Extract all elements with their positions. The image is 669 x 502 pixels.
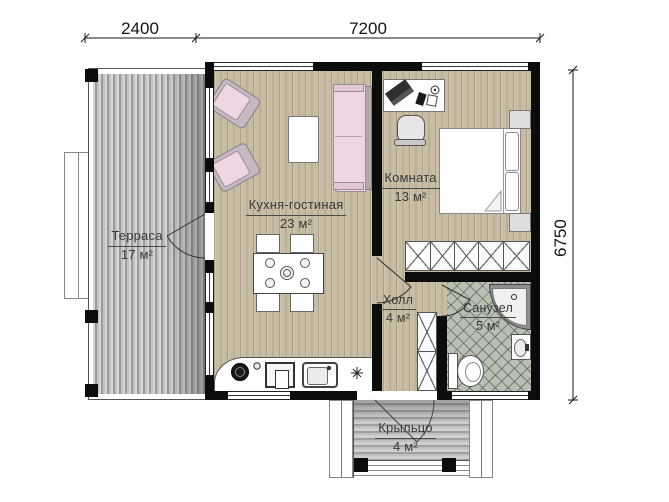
porch-label: Крыльцо 4 м²: [353, 420, 458, 456]
dining-chair: [256, 293, 280, 312]
window: [205, 273, 214, 302]
window: [422, 62, 528, 71]
toilet-seat: [465, 362, 481, 382]
dimension-right: 6750: [551, 208, 571, 268]
dining-chair: [256, 234, 280, 253]
bedroom-name: Комната: [381, 170, 439, 189]
coffee-table: [288, 116, 319, 163]
kitchen-counter: [214, 357, 375, 393]
bedroom-label: Комната 13 м²: [358, 170, 463, 206]
wardrobe: [405, 241, 531, 271]
office-chair-back: [394, 139, 426, 146]
office-chair: [394, 113, 426, 147]
window: [205, 88, 214, 158]
faucet-icon: [525, 344, 529, 351]
sink-basin: [307, 367, 328, 385]
porch-post: [354, 458, 368, 472]
window: [452, 391, 528, 400]
terrace-post: [85, 384, 98, 397]
terrace-door-opening: [205, 213, 214, 260]
bathroom-name: Санузел: [460, 300, 516, 318]
oven-icon: [265, 362, 295, 388]
wardrobe-door: [478, 241, 504, 271]
toilet-icon: [448, 352, 485, 390]
window: [228, 391, 290, 400]
window: [205, 313, 214, 375]
porch-post: [442, 458, 456, 472]
oven-door: [275, 370, 289, 389]
floor-plan: 2400 7200 6750 Терраса 17 м² Кухня-гости…: [0, 0, 669, 502]
wardrobe-door: [454, 241, 479, 271]
pillow: [505, 132, 519, 171]
wardrobe-door: [417, 351, 437, 391]
desk: [383, 79, 445, 112]
bathroom-label: Санузел 5 м²: [447, 300, 529, 335]
window: [205, 172, 214, 202]
kitchen-living-label: Кухня-гостиная 23 м²: [216, 197, 376, 233]
hall-label: Холл 4 м²: [368, 292, 428, 327]
porch-rail-left: [329, 400, 353, 478]
sofa-armrest: [333, 84, 364, 92]
wardrobe-door: [503, 241, 530, 271]
wall-hall-bathroom: [437, 316, 447, 400]
kitchen-living-area: 23 м²: [216, 216, 376, 233]
bathroom-area: 5 м²: [447, 318, 529, 334]
hall-name: Холл: [380, 292, 416, 310]
terrace-area: 17 м²: [87, 247, 187, 264]
terrace-label: Терраса 17 м²: [87, 228, 187, 264]
dimension-top-right: 7200: [320, 19, 416, 39]
dining-chair: [290, 234, 314, 253]
sofa-seam: [335, 136, 362, 137]
entrance-door-opening: [357, 391, 437, 400]
pillow: [505, 172, 519, 211]
dimension-top-left: 2400: [95, 19, 185, 39]
dining-table: [253, 253, 324, 294]
nightstand: [509, 110, 531, 129]
wardrobe-door: [430, 241, 455, 271]
notepad-icon: [426, 94, 438, 107]
porch-rail-right: [469, 400, 493, 478]
kitchen-living-name: Кухня-гостиная: [246, 197, 347, 216]
terrace-post: [85, 69, 98, 82]
terrace-name: Терраса: [108, 228, 165, 247]
wall-right: [531, 62, 540, 400]
window: [214, 62, 313, 71]
washbasin-icon: [511, 334, 531, 360]
nightstand: [509, 213, 531, 232]
laptop-icon: [385, 79, 414, 106]
porch-area: 4 м²: [353, 439, 458, 456]
dining-chair: [290, 293, 314, 312]
hall-area: 4 м²: [368, 310, 428, 326]
wardrobe-door: [405, 241, 431, 271]
wall-bedroom-bathroom: [405, 272, 540, 282]
bedroom-area: 13 м²: [358, 189, 463, 206]
terrace-post: [85, 310, 98, 323]
porch-name: Крыльцо: [375, 420, 435, 439]
sink-icon: [302, 362, 338, 388]
toilet-bowl: [457, 355, 484, 387]
phone-icon: [415, 92, 426, 106]
